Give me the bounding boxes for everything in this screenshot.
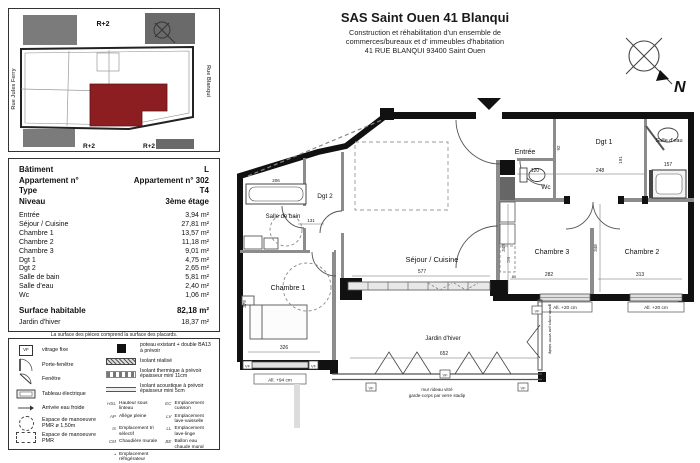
vf-mark-wg-1: VF [368,386,374,391]
svg-text:157: 157 [664,162,673,168]
north-compass: N [616,32,694,98]
electrical-panel-icon [14,389,38,399]
bathroom-sinks [244,236,278,249]
winter-garden-row: Jardin d'hiver18,37 m² [19,318,209,328]
area-row: Chambre 211,18 m² [19,239,209,248]
apartment-floor-plan: EC All. +20 cm All. +20 cm [232,92,700,440]
winter-garden-openings [375,325,540,374]
title-block: SAS Saint Ouen 41 Blanqui Construction e… [290,10,560,55]
svg-text:348: 348 [593,244,598,252]
wall-posts [330,160,648,382]
room-label-entree: Entrée [515,149,536,156]
allege-label-ch3: All. +20 cm [553,305,577,311]
info-label: Bâtiment [19,165,53,176]
bathtub [246,184,306,204]
curtain-wall-note-vertical: garde-corps par verre stadip [548,304,553,355]
svg-text:577: 577 [418,269,427,275]
siteplan-block-bottomleft [23,129,75,147]
abbrev-ts: tsEmplacement tri sélectif [106,426,159,437]
legend-item-pmr-rect: Espace de manoeuvre PMR [14,431,102,446]
info-row-appartement: Appartement n° Appartement n° 302 [19,176,209,187]
street-label-right: Rue Blanqui [205,65,211,98]
floor-label-bottom-2: R+2 [143,143,155,150]
insulation-done-icon [106,358,136,365]
room-label-dgt2: Dgt 2 [317,193,333,200]
legend-panel: VF vitrage fixe Porte-fenêtre Fenêtre Ta… [8,338,220,450]
project-title: SAS Saint Ouen 41 Blanqui [290,10,560,25]
abbrev-ll: LLEmplacement lave-linge [162,426,215,437]
vf-mark-wg-3: VF [520,386,526,391]
room-label-sejour: Séjour / Cuisine [406,255,459,264]
legend-item-vitrage-fixe: VF vitrage fixe [14,343,102,358]
info-value: T4 [200,186,209,197]
svg-text:248: 248 [596,168,605,174]
area-row: Chambre 113,57 m² [19,230,209,239]
info-row-batiment: Bâtiment L [19,165,209,176]
room-label-sdb: Salle de bain [266,214,301,220]
room-label-chambre1: Chambre 1 [271,285,306,292]
vf-boxes-winter-garden [366,306,542,391]
project-subtitle-1: Construction et réhabilitation d'un ense… [290,28,560,37]
room-label-dgt1: Dgt 1 [596,139,613,146]
svg-text:206: 206 [272,178,280,183]
info-value: 3ème étage [165,197,209,208]
entrance-arrow-icon [477,98,501,110]
sejour-glazing [348,282,490,290]
abbrev-cm: CMChaudière murale [106,439,159,450]
abbrev-ec: ECEmplacement cuisson [162,401,215,412]
pmr-circle-icon [14,416,38,431]
svg-text:131: 131 [307,218,315,223]
abbrev-hsl: HSLHauteur sous linteau [106,401,159,412]
room-labels: Entrée Wc Dgt 1 Salle d'eau Dgt 2 Salle … [266,138,683,342]
legend-item-fenetre: Fenêtre [14,372,102,387]
bed-chambre1 [242,296,307,339]
svg-text:120: 120 [531,168,540,174]
svg-text:348: 348 [501,244,506,252]
floor-label-bottom-1: R+2 [83,143,95,150]
svg-text:379: 379 [242,300,247,308]
legend-item-isolant-realise: Isolant réalisé [106,358,214,365]
vf-mark-wg-4: VF [534,309,540,314]
existing-post-icon [117,344,126,353]
thermal-insulation-line [248,120,382,176]
legend-item-arrivee-eau: Arrivée eau froide [14,401,102,416]
fixed-glazing-icon: VF [14,345,38,356]
abbrev-be: BEBallon eau chaude mural [162,439,215,450]
chambre1-window [243,361,318,428]
apartment-info-panel: Bâtiment L Appartement n° Appartement n°… [8,158,220,332]
floorplan-sheet: { "header": { "title": "SAS Saint Ouen 4… [0,0,700,456]
allege-label-ch2: All. +20 cm [644,305,668,311]
room-label-jardin: Jardin d'hiver [425,336,461,342]
sejour-dashed-zone [355,142,448,210]
legend-item-poteau: poteau existant + double BA13 à prévoir [106,343,214,355]
kitchen-cooker-mark: EC [506,257,511,264]
legend-item-isolant-acoustique: Isolant acoustique à prévoir épaisseur m… [106,384,214,396]
french-door-icon [14,358,38,372]
abbrev-lv: LVEmplacement lave-vaisselle [162,414,215,425]
street-label-left: Rue Jules Ferry [11,67,17,109]
area-row: Dgt 22,65 m² [19,265,209,274]
vf-mark-wg-2: VF [442,373,448,378]
abbrev-ap: APAllège pleine [106,414,159,425]
legend-abbreviations: HSLHauteur sous linteau ECEmplacement cu… [106,401,214,463]
area-row: Dgt 14,75 m² [19,257,209,266]
svg-text:191: 191 [618,156,623,164]
siteplan-block-bottomright [156,139,194,149]
info-label: Type [19,186,37,197]
pmr-rect-icon [14,432,38,443]
curtain-wall-note-2: garde-corps par verre stadip [409,393,466,398]
thermal-insulation-icon [106,371,136,378]
area-row: Chambre 39,01 m² [19,248,209,257]
acoustic-insulation-icon [106,387,136,392]
legend-item-tableau-electrique: Tableau électrique [14,387,102,402]
svg-text:326: 326 [280,345,289,351]
svg-text:92: 92 [556,145,561,151]
project-address: 41 RUE BLANQUI 93400 Saint Ouen [290,46,560,55]
area-row: Salle de bain5,81 m² [19,274,209,283]
area-row: Entrée3,94 m² [19,212,209,221]
area-row: Wc1,06 m² [19,292,209,301]
info-row-type: Type T4 [19,186,209,197]
svg-text:282: 282 [545,272,554,278]
total-area-row: Surface habitable82,18 m² [19,305,209,316]
abbrev-refrigerateur: •Emplacement réfrigérateur [106,452,159,463]
vf-mark-ch1-left: VF [245,364,251,369]
room-label-salle-eau: Salle d'eau [655,138,682,144]
legend-item-pmr-circle: Espace de manoeuvre PMR ø 1,50m [14,416,102,431]
site-plan-panel: R+2 R+2 R+2 Rue Jules Ferry Rue Blanqui [8,8,220,152]
floor-label-top: R+2 [96,21,109,28]
curtain-wall-note-1: mur rideau vitré [421,387,453,392]
cold-water-arrow-icon [14,404,38,412]
info-row-niveau: Niveau 3ème étage [19,197,209,208]
info-value: Appartement n° 302 [134,176,209,187]
legend-column-right: poteau existant + double BA13 à prévoir … [106,343,214,445]
allege-label-ch1: All. +94 cm [268,378,292,384]
room-label-chambre3: Chambre 3 [535,249,570,256]
dimension-lines [248,174,682,358]
info-value: L [204,165,209,176]
info-label: Niveau [19,197,45,208]
room-label-wc: Wc [541,184,551,191]
legend-column-left: VF vitrage fixe Porte-fenêtre Fenêtre Ta… [14,343,102,445]
area-row: Salle d'eau2,40 m² [19,283,209,292]
svg-text:652: 652 [440,351,449,357]
legend-item-isolant-thermique: Isolant thermique à prévoir épaisseur mi… [106,369,214,381]
site-plan: R+2 R+2 R+2 Rue Jules Ferry Rue Blanqui [9,9,219,151]
legend-item-porte-fenetre: Porte-fenêtre [14,358,102,373]
area-row: Séjour / Cuisine27,81 m² [19,221,209,230]
window-icon [14,373,38,385]
info-label: Appartement n° [19,176,79,187]
siteplan-block-topleft [23,15,77,45]
vf-mark-ch1-right: VF [311,364,317,369]
room-label-chambre2: Chambre 2 [625,249,660,256]
project-subtitle-2: commerces/bureaux et d' immeubles d'habi… [290,37,560,46]
svg-text:313: 313 [636,272,645,278]
svg-text:80: 80 [512,274,517,279]
